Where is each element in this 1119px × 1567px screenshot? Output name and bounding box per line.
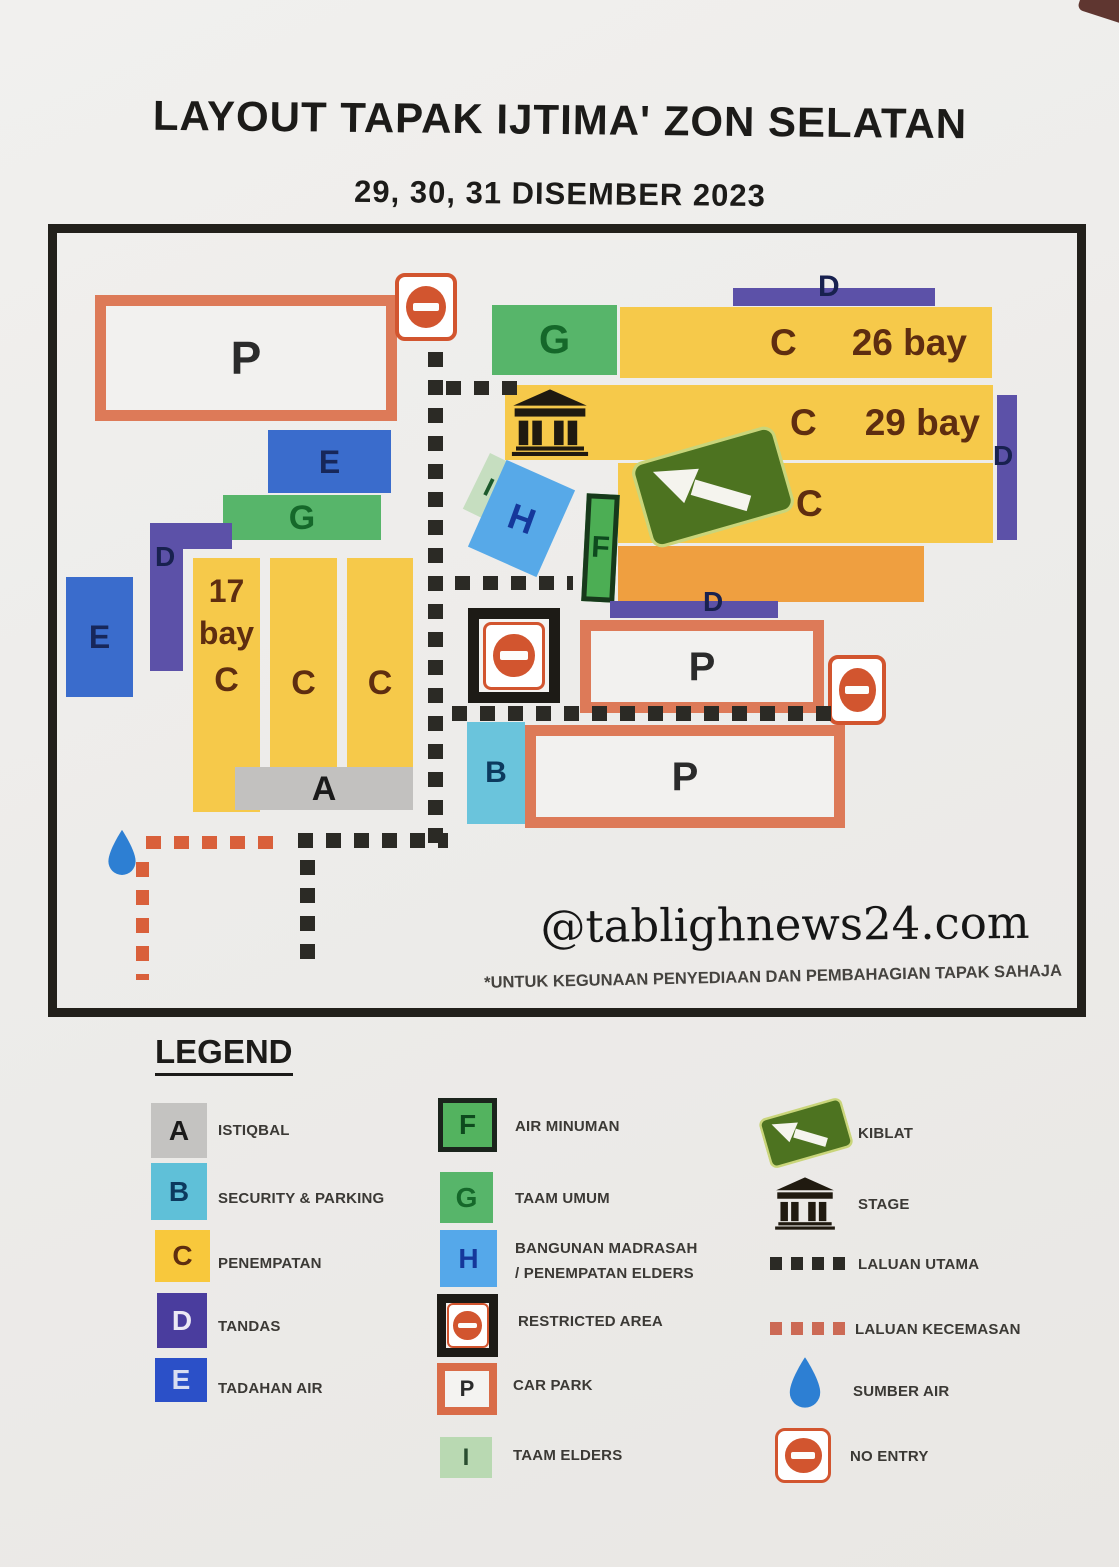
carpark-top-label: P [231,335,262,381]
legend-label-taam-elders: TAAM ELDERS [513,1447,622,1466]
water-drop-icon [105,828,139,876]
legend-icon-restricted [437,1294,498,1357]
carpark-bottom-label: P [672,757,699,797]
no-entry-icon-top [395,273,457,341]
legend-restricted-circle [453,1311,481,1340]
route-main-branch-top [446,381,520,395]
zone-taam-top-label: G [539,320,570,360]
water-tank-left-label: E [89,621,110,653]
photo-corner-shadow [1077,0,1119,25]
route-main-bottom-vertical [300,860,315,970]
legend-swatch-a: A [151,1103,207,1158]
legend-no-entry-icon [775,1428,831,1483]
zone-c-col2: C [270,558,337,767]
page-title: LAYOUT TAPAK IJTIMA' ZON SELATAN [60,91,1060,149]
legend-label-tandas: TANDAS [218,1318,281,1337]
legend-label-madrasah-line1: BANGUNAN MADRASAH [515,1240,698,1259]
legend-label-madrasah: BANGUNAN MADRASAH / PENEMPATAN ELDERS [515,1240,698,1284]
restricted-circle [493,634,534,677]
zone-c-col3: C [347,558,413,767]
legend-label-laluan-utama: LALUAN UTAMA [858,1256,979,1275]
legend-swatch-b: B [151,1163,207,1220]
carpark-mid: P [580,620,824,713]
zone-air-minuman: F [581,493,620,603]
legend-swatch-e: E [155,1358,207,1402]
toilets-bar-right-label: D [993,442,1013,470]
water-tank-upper: E [268,430,391,493]
legend-label-istiqbal: ISTIQBAL [218,1122,290,1141]
legend-label-madrasah-line2: / PENEMPATAN ELDERS [515,1265,698,1284]
orange-strip [618,546,924,602]
no-entry-circle [406,286,446,328]
restricted-area-box [468,608,560,703]
legend-label-tadahan-air: TADAHAN AIR [218,1380,323,1399]
legend-label-laluan-kecemasan: LALUAN KECEMASAN [855,1321,1021,1340]
water-tank-left: E [66,577,133,697]
legend-swatch-c-letter: C [172,1240,192,1272]
zone-c-3-letter: C [796,485,823,522]
carpark-mid-label: P [689,647,716,687]
legend-swatch-f: F [438,1098,497,1152]
toilets-bar-top-label: D [818,272,840,302]
zone-taam-left-label: G [289,501,315,535]
carpark-top: P [95,295,397,421]
zone-air-minuman-label: F [591,533,611,564]
legend-swatch-c: C [155,1230,210,1282]
no-entry-circle-right [839,668,876,711]
legend-swatch-a-letter: A [169,1115,189,1147]
route-main-horizontal [452,706,844,721]
legend-swatch-d: D [157,1293,207,1348]
zone-c-col3-letter: C [347,666,413,700]
zone-c-col1-17: 17 [193,570,260,612]
legend-label-security: SECURITY & PARKING [218,1190,384,1209]
legend-kiblat-icon [757,1095,855,1171]
zone-c-26bay-letter: C [770,324,797,361]
zone-taam-top: G [492,305,617,375]
legend-label-penempatan: PENEMPATAN [218,1255,322,1274]
zone-c-29bay-letter: C [790,404,817,441]
legend-swatch-h: H [440,1230,497,1287]
legend-title: LEGEND [155,1033,293,1076]
zone-c-col2-letter: C [270,666,337,700]
toilets-bar-left-label: D [155,543,175,571]
zone-c-col1-bay: bay [193,612,260,654]
zone-c-29bay-count: 29 bay [865,404,980,441]
istiqbal-bar: A [235,767,413,810]
toilets-bar-mid [610,601,778,618]
route-main-bottom [298,833,448,848]
legend-label-taam-umum: TAAM UMUM [515,1190,610,1209]
zone-security-parking-label: B [485,758,507,788]
route-emergency-vertical [136,862,149,980]
legend-swatch-b-letter: B [169,1176,189,1208]
legend-route-emergency-icon [770,1322,845,1335]
zone-c-26bay: C 26 bay [620,307,992,378]
water-tank-upper-label: E [319,446,340,478]
legend-label-carpark: CAR PARK [513,1377,593,1396]
legend-swatch-g: G [440,1172,493,1223]
route-main-vertical [428,352,443,844]
legend-stage-icon [773,1173,837,1233]
restricted-inner-sign [483,622,545,690]
route-main-branch-mid [455,576,573,590]
legend-icon-carpark: P [437,1363,497,1415]
legend-label-restricted: RESTRICTED AREA [518,1313,663,1332]
zone-c-col1-letter: C [193,654,260,706]
legend-no-entry-circle [785,1438,822,1472]
legend-label-stage: STAGE [858,1196,910,1215]
legend-swatch-i: I [440,1437,492,1478]
legend-restricted-inner [447,1303,489,1348]
zone-c-26bay-count: 26 bay [852,324,967,361]
stage-icon [508,388,592,456]
legend-label-kiblat: KIBLAT [858,1125,913,1144]
zone-taam-left: G [223,495,381,540]
page-subtitle: 29, 30, 31 DISEMBER 2023 [60,171,1060,217]
legend-swatch-g-letter: G [456,1182,478,1214]
zone-madrasah-label: H [503,497,540,540]
legend-label-no-entry: NO ENTRY [850,1448,929,1467]
legend-swatch-h-letter: H [458,1243,478,1275]
route-emergency-horizontal [146,836,286,849]
istiqbal-bar-label: A [312,772,337,806]
legend-swatch-e-letter: E [172,1364,191,1396]
zone-security-parking: B [467,722,525,824]
legend-swatch-i-letter: I [463,1444,470,1472]
scanned-page: LAYOUT TAPAK IJTIMA' ZON SELATAN 29, 30,… [0,0,1119,1567]
legend-carpark-letter: P [460,1376,475,1402]
legend-water-drop-icon [786,1353,824,1411]
watermark: @tablighnews24.com [530,896,1040,953]
legend-route-main-icon [770,1257,845,1270]
legend-swatch-d-letter: D [172,1305,192,1337]
legend-label-sumber-air: SUMBER AIR [853,1383,949,1402]
legend-label-air-minuman: AIR MINUMAN [515,1118,620,1137]
carpark-bottom: P [525,725,845,828]
legend-swatch-f-letter: F [459,1109,476,1141]
toilets-bar-mid-label: D [703,588,723,616]
